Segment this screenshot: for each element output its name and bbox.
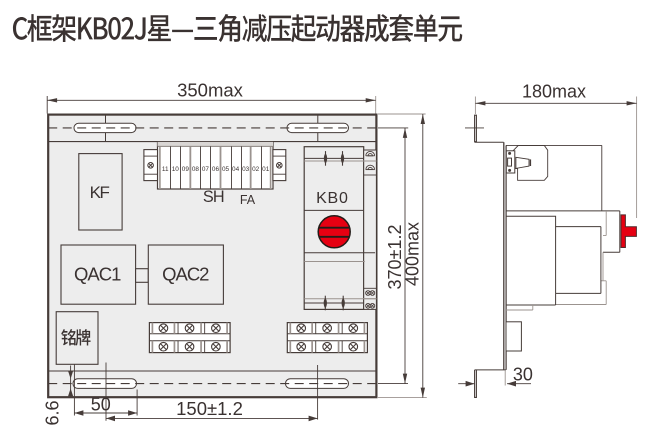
- svg-text:6.6: 6.6: [43, 400, 63, 425]
- svg-text:11: 11: [162, 166, 169, 173]
- svg-text:350max: 350max: [177, 80, 244, 101]
- svg-text:KF: KF: [90, 183, 110, 202]
- svg-text:SH: SH: [203, 188, 224, 206]
- svg-text:09: 09: [182, 166, 190, 173]
- svg-text:02: 02: [252, 166, 260, 173]
- svg-text:400max: 400max: [403, 222, 423, 286]
- svg-text:08: 08: [192, 166, 200, 173]
- svg-text:07: 07: [202, 166, 210, 173]
- svg-text:03: 03: [242, 166, 250, 173]
- svg-text:50: 50: [91, 394, 111, 414]
- svg-text:150±1.2: 150±1.2: [176, 398, 243, 419]
- svg-text:KB0: KB0: [316, 190, 349, 207]
- svg-text:06: 06: [212, 166, 220, 173]
- svg-text:QAC1: QAC1: [74, 264, 121, 285]
- svg-text:FA: FA: [240, 193, 256, 207]
- svg-text:01: 01: [262, 166, 270, 173]
- svg-text:10: 10: [172, 166, 180, 173]
- svg-text:04: 04: [232, 166, 240, 173]
- svg-text:05: 05: [222, 166, 230, 173]
- svg-text:30: 30: [513, 364, 533, 384]
- svg-text:180max: 180max: [522, 82, 586, 102]
- svg-text:QAC2: QAC2: [162, 264, 209, 285]
